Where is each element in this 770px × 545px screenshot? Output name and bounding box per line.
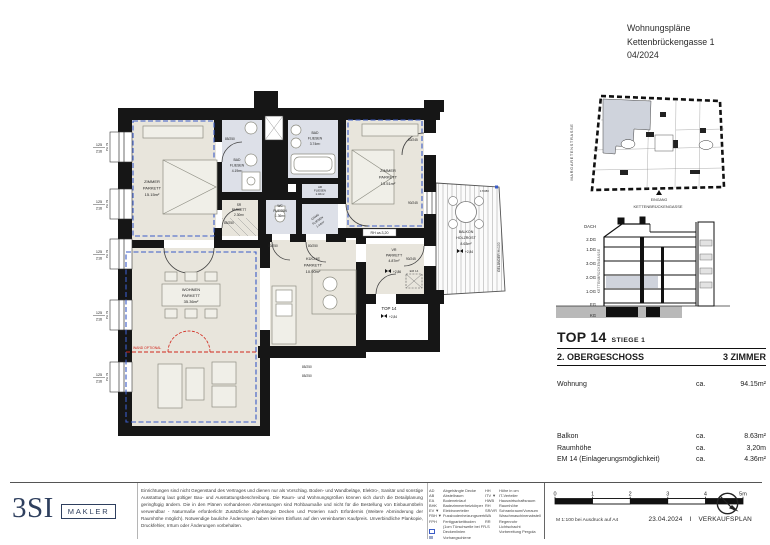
info-row-balkon: Balkon ca. 8.63m² <box>557 431 766 442</box>
entrance-label: EINGANG <box>651 198 668 202</box>
svg-text:FLIESEN: FLIESEN <box>308 137 323 141</box>
svg-text:PARKETT: PARKETT <box>304 263 323 268</box>
svg-text:PARKETT: PARKETT <box>143 186 162 191</box>
highlighted-floor <box>606 276 658 288</box>
footer-vdivider <box>427 483 428 539</box>
broker-logo: 3SI MAKLER <box>12 492 116 525</box>
floor-label: DACH <box>584 224 596 229</box>
svg-text:1.46m²: 1.46m² <box>316 192 325 196</box>
scale-tick: 2 <box>629 492 632 498</box>
row-value: 4.36m² <box>722 454 766 465</box>
room-label-zimmer2: ZIMMER PARKETT 13.51m² <box>379 168 398 186</box>
footer-vdivider <box>544 483 545 539</box>
parapet-label: PH 79 <box>105 200 109 209</box>
entrance-street-label: KETTENBRÜCKENGASSE <box>633 204 682 209</box>
sheet-header: Wohnungspläne Kettenbrückengasse 1 04/20… <box>627 22 715 63</box>
em-label: EM 14 <box>410 269 419 273</box>
parapet-label: PH 79 <box>105 311 109 320</box>
street-label-left: MARGARETENSTRASSE <box>569 123 574 180</box>
curtain-rail-marker <box>495 186 498 189</box>
courtyard <box>655 135 673 151</box>
header-title: Wohnungspläne <box>627 22 715 36</box>
legend-right-column: HHHöhe in cm ITV ▼IT-Verteiler HWBHauswi… <box>485 488 541 540</box>
svg-text:WC: WC <box>277 204 283 208</box>
svg-text:ZIMMER: ZIMMER <box>144 179 160 184</box>
row-label: Wohnung <box>557 379 696 390</box>
level-entry: +2,84 <box>389 315 397 319</box>
railing-label: GELÄNDER H=100 <box>497 242 501 272</box>
svg-text:10.90m²: 10.90m² <box>306 269 321 274</box>
window-dim: 125 <box>96 143 102 147</box>
door-dim: 85/250 <box>302 365 312 369</box>
section-structure <box>604 217 714 306</box>
section-windows <box>700 240 712 288</box>
north-arrow-icon <box>714 490 742 520</box>
row-ca: ca. <box>696 454 722 465</box>
legend-desc: Vorhangschiene <box>443 535 485 540</box>
room-label-wohnen: WOHNEN PARKETT 35.36m² <box>182 287 201 304</box>
svg-text:3.74m²: 3.74m² <box>310 142 321 146</box>
window-dim: 216 <box>96 207 102 211</box>
info-row-em: EM 14 (Einlagerungsmöglichkeit) ca. 4.36… <box>557 454 766 465</box>
row-value: 3,20m <box>722 443 766 454</box>
row-ca: ca. <box>696 431 722 442</box>
date-separator: I <box>689 516 691 523</box>
row-value: 94.15m² <box>722 379 766 390</box>
stair-oval <box>621 140 635 149</box>
svg-text:ZIMMER: ZIMMER <box>380 168 396 173</box>
row-label: Raumhöhe <box>557 443 696 454</box>
door-dim: 85/250 <box>225 137 235 141</box>
svg-text:1.36m²: 1.36m² <box>275 214 285 218</box>
legend: ADAbgehängte Decke ABAbstellraum EABoden… <box>429 488 541 540</box>
row-ca: ca. <box>696 443 722 454</box>
window-dim: 125 <box>96 311 102 315</box>
door-dim: 80/250 <box>308 244 318 248</box>
door-dim: 85/250 <box>302 374 312 378</box>
floor-label: EG <box>590 302 596 307</box>
svg-text:FLIESEN: FLIESEN <box>230 164 245 168</box>
level-balcony: +2,84 <box>465 250 473 254</box>
floor-label: 2.OG <box>586 275 596 280</box>
plan-sheet: Wohnungspläne Kettenbrückengasse 1 04/20… <box>0 0 770 545</box>
window-dim: 216 <box>96 150 102 154</box>
unit-entrance-label: TOP 14 <box>382 306 398 311</box>
svg-text:PARKETT: PARKETT <box>379 175 398 180</box>
room-label-kueche: KÜCHE PARKETT 10.90m² <box>304 256 323 274</box>
svg-text:BAD: BAD <box>312 131 320 135</box>
window-dim: 216 <box>96 257 102 261</box>
door-dim: 90/245 <box>406 257 416 261</box>
room-height-label: RH ca.3,20 <box>371 231 389 235</box>
header-date: 04/2024 <box>627 49 715 63</box>
footer-vdivider <box>137 483 138 539</box>
window-dim: 216 <box>96 380 102 384</box>
ceiling-line-symbol <box>429 529 435 534</box>
floor-labels: DACH 2.DG 1.DG 3.OG 2.OG 1.OG EG KG <box>584 224 596 318</box>
window-dim: 125 <box>96 200 102 204</box>
building-section: DACH 2.DG 1.DG 3.OG 2.OG 1.OG EG KG KETT… <box>540 215 730 320</box>
row-ca: ca. <box>696 379 722 390</box>
parapet-label: PH 79 <box>105 373 109 382</box>
row-label: EM 14 (Einlagerungsmöglichkeit) <box>557 454 696 465</box>
info-row-wohnung: Wohnung ca. 94.15m² <box>557 379 766 390</box>
svg-text:KÜCHE: KÜCHE <box>306 256 320 261</box>
footer-divider <box>10 482 762 483</box>
svg-text:13.51m²: 13.51m² <box>381 181 396 186</box>
door-dim: 80/245 <box>408 138 418 142</box>
svg-text:SR: SR <box>237 203 242 207</box>
staircase-label: STIEGE 1 <box>612 337 646 344</box>
scale-tick: 4 <box>704 492 707 498</box>
floor-label: 2.DG <box>586 237 596 242</box>
window-dim: 125 <box>96 373 102 377</box>
svg-text:4.87m²: 4.87m² <box>388 259 400 263</box>
curtain-rail-symbol <box>429 536 433 539</box>
logo-text: 3SI <box>12 492 54 525</box>
level-vr: +2,86 <box>393 270 401 274</box>
section-street-label: KETTENBRÜCKENGASSE <box>597 249 601 294</box>
header-address: Kettenbrückengasse 1 <box>627 36 715 50</box>
disclaimer-text: Einrichtungen sind nicht Gegenstand des … <box>141 487 423 529</box>
room-label-zimmer1: ZIMMER PARKETT 15.15m² <box>143 179 162 197</box>
entrance-arrow-icon <box>656 190 662 195</box>
door-dim: 80/250 <box>268 244 278 248</box>
floor-label: 1.OG <box>586 289 596 294</box>
row-value: 8.63m² <box>722 431 766 442</box>
row-label: Balkon <box>557 431 696 442</box>
balcony-dim: 170/80 <box>480 189 489 193</box>
svg-text:35.36m²: 35.36m² <box>184 299 199 304</box>
stair-oval <box>699 141 713 150</box>
floor-label: KG <box>590 313 596 318</box>
svg-text:PARKETT: PARKETT <box>386 254 403 258</box>
door-dim: 85/250 <box>224 221 234 225</box>
svg-text:PARKETT: PARKETT <box>182 293 201 298</box>
floor-name: 2. OBERGESCHOSS <box>557 352 644 362</box>
svg-text:BAD: BAD <box>234 158 242 162</box>
door-dim: 90/245 <box>408 201 418 205</box>
plan-date: 23.04.2024 <box>649 516 683 523</box>
svg-text:8.63m²: 8.63m² <box>460 242 472 246</box>
window-dim: 125 <box>96 250 102 254</box>
site-plan: MARGARETENSTRASSE EINGANG KETTENBRÜCKENG… <box>560 88 730 213</box>
svg-text:4.19m²: 4.19m² <box>232 169 243 173</box>
optional-wall-label: WAND OPTIONAL <box>133 346 161 350</box>
room-count: 3 ZIMMER <box>723 352 766 362</box>
unit-info-block: TOP 14 STIEGE 1 2. OBERGESCHOSS 3 ZIMMER… <box>557 329 766 466</box>
legend-desc: Vorbereitung Pergola <box>499 529 541 534</box>
scale-tick: 1 <box>591 492 594 498</box>
unit-title: TOP 14 <box>557 329 607 345</box>
scale-tick: 0 <box>553 492 556 498</box>
floor-label: 1.DG <box>586 247 596 252</box>
svg-text:HOLZROST: HOLZROST <box>456 236 476 240</box>
svg-text:FLIESEN: FLIESEN <box>273 209 287 213</box>
window-dimension-labels: 125 216 PH 79 125 216 PH 79 125 216 PH 7… <box>93 143 109 384</box>
scale-tick: 3 <box>666 492 669 498</box>
svg-text:PARKETT: PARKETT <box>232 208 247 212</box>
svg-text:VR: VR <box>392 248 397 252</box>
svg-text:15.15m²: 15.15m² <box>145 192 160 197</box>
svg-text:BALKON: BALKON <box>459 230 474 234</box>
floorplan: 125 216 PH 79 125 216 PH 79 125 216 PH 7… <box>85 80 520 490</box>
floor-label: 3.OG <box>586 261 596 266</box>
svg-text:WOHNEN: WOHNEN <box>182 287 200 292</box>
window-dim: 216 <box>96 318 102 322</box>
parapet-label: PH 79 <box>105 250 109 259</box>
legend-left-column: ADAbgehängte Decke ABAbstellraum EABoden… <box>429 488 485 540</box>
room-height-chip: RH ca.3,20 <box>363 229 396 236</box>
logo-sub-text: MAKLER <box>61 504 117 519</box>
info-row-raumhoehe: Raumhöhe ca. 3,20m <box>557 443 766 454</box>
svg-text:2.30m²: 2.30m² <box>234 213 244 217</box>
parapet-label: PH 79 <box>105 143 109 152</box>
